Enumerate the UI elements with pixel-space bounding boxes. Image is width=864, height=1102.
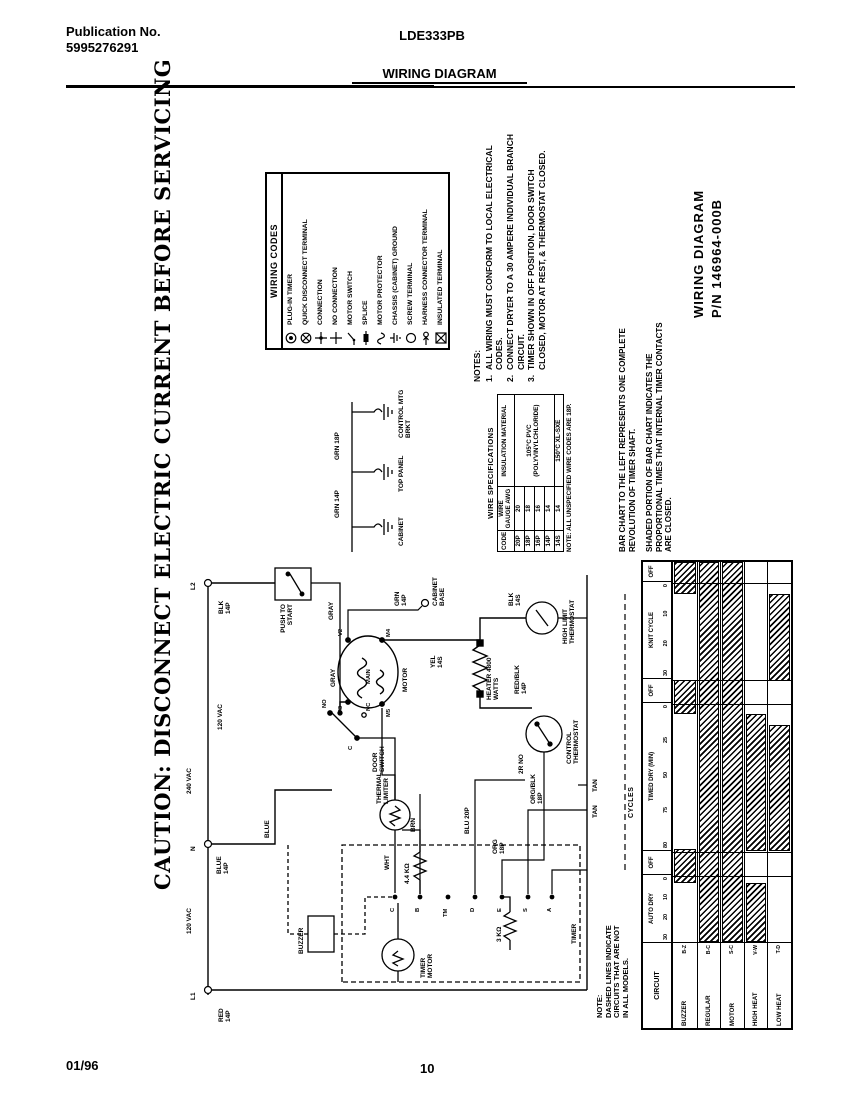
note-item: 2. CONNECT DRYER TO A 30 AMPERE INDIVIDU… xyxy=(505,132,526,382)
timer-terminal-b: B xyxy=(415,908,421,912)
part-number-value: P/N 146964-000B xyxy=(708,128,726,318)
label-timer-motor: TIMER MOTOR xyxy=(420,944,434,978)
table-row: 14S 14 150°C XL-SXE xyxy=(554,395,564,552)
label-ground-cabinet: CABINET xyxy=(398,506,405,546)
bar-chart-captions: BAR CHART TO THE LEFT REPRESENTS ONE COM… xyxy=(618,320,682,552)
legend-item: MOTOR PROTECTOR xyxy=(373,174,388,348)
label-high-limit-thermostat: HIGH LIMIT THERMOSTAT xyxy=(562,592,576,644)
timer-terminal-d: D xyxy=(470,908,476,912)
label-l1: L1 xyxy=(190,992,197,1000)
label-org-18p: ORG 18P xyxy=(492,826,506,854)
section-auto-dry: AUTO DRY 30 20 10 0 xyxy=(643,875,671,943)
section-divider xyxy=(671,680,791,681)
part-number-block: WIRING DIAGRAM P/N 146964-000B xyxy=(690,128,725,318)
knit-cycle-ticks: 30 20 10 0 xyxy=(661,582,671,678)
terminal-n xyxy=(205,841,212,848)
plug-in-timer-icon xyxy=(285,325,297,345)
label-2r-no: 2R NO xyxy=(518,754,525,774)
label-120vac-right: 120 VAC xyxy=(217,704,224,730)
label-main-winding: MAIN xyxy=(366,669,372,684)
terminal-l1 xyxy=(205,987,212,994)
legend-item: SCREW TERMINAL xyxy=(403,174,418,348)
harness-connector-terminal-icon xyxy=(420,325,432,345)
cycles-title: CYCLES xyxy=(628,787,635,818)
timer-terminal-a: A xyxy=(547,908,553,912)
legend-item: CHASSIS (CABINET) GROUND xyxy=(388,174,403,348)
wire-specs-table: CODE WIRE GAUGE AWG INSULATION MATERIAL … xyxy=(497,394,564,552)
circuit-schematic: L1 RED 14P N BLUE 14P L2 BLK 14P 120 VAC… xyxy=(180,560,630,1030)
section-divider xyxy=(671,852,791,853)
screw-terminal-icon xyxy=(405,325,417,345)
label-nc: NC xyxy=(366,703,372,711)
label-gray-1: GRAY xyxy=(328,602,335,620)
label-no: NO xyxy=(322,699,328,708)
label-tan-1: TAN xyxy=(592,805,599,818)
timer-terminals xyxy=(393,895,555,900)
table-row: 20P 20 105°C PVC (POLYVINYLCHLORIDE) xyxy=(514,395,524,552)
chart-track xyxy=(698,562,721,943)
chassis-ground-icon xyxy=(384,404,392,535)
caution-banner: CAUTION: DISCONNECT ELECTRIC CURRENT BEF… xyxy=(150,265,175,890)
note-item: 3. TIMER SHOWN IN OFF POSITION, DOOR SWI… xyxy=(526,132,547,382)
timer-chart-shaded-segment xyxy=(746,714,767,851)
wire-specs-title: WIRE SPECIFICATIONS xyxy=(486,394,495,552)
timer-chart-shaded-segment xyxy=(769,594,790,681)
label-timer: TIMER xyxy=(571,924,578,944)
label-120vac-left: 120 VAC xyxy=(186,908,193,934)
heater-element xyxy=(382,618,532,708)
timer-chart-shaded-segment xyxy=(674,562,696,594)
label-m5: M5 xyxy=(386,709,392,717)
insulation-pvc-cell: 105°C PVC (POLYVINYLCHLORIDE) xyxy=(514,395,554,487)
wire-specifications: WIRE SPECIFICATIONS CODE WIRE GAUGE AWG … xyxy=(486,394,574,552)
header-rule-thick xyxy=(66,85,434,88)
timer-terminal-s: S xyxy=(523,908,529,912)
label-wht: WHT xyxy=(384,855,391,870)
label-n: N xyxy=(190,846,197,851)
section-divider xyxy=(671,704,791,705)
label-l2: L2 xyxy=(190,582,197,590)
label-blu-20p: BLU 20P xyxy=(464,806,471,834)
motor-switch-icon xyxy=(345,325,357,345)
timer-chart-shaded-segment xyxy=(769,725,790,851)
label-c: C xyxy=(348,746,354,750)
section-divider xyxy=(671,876,791,877)
label-blk-14s: BLK 14S xyxy=(508,582,522,606)
chart-track xyxy=(673,562,697,943)
label-3k: 3 KΩ xyxy=(496,927,503,942)
label-n-wire: BLUE 14P xyxy=(216,846,230,874)
notes-block: NOTES: 1. ALL WIRING MUST CONFORM TO LOC… xyxy=(472,132,547,382)
chart-track xyxy=(745,562,768,943)
section-off-3: OFF xyxy=(643,562,671,582)
part-number-title: WIRING DIAGRAM xyxy=(690,128,708,318)
timer-terminal-c: C xyxy=(390,908,396,912)
table-header-row: CODE WIRE GAUGE AWG INSULATION MATERIAL xyxy=(498,395,515,552)
label-240vac: 240 VAC xyxy=(186,768,193,794)
model-number: LDE333PB xyxy=(0,28,864,43)
no-connection-icon xyxy=(330,325,342,345)
label-gray-2: GRAY xyxy=(330,669,337,687)
label-org-blk-18p: ORG/BLK 18P xyxy=(530,772,544,804)
label-red-blk-14p: RED/BLK 14P xyxy=(514,662,528,694)
insulated-terminal-icon xyxy=(435,325,447,345)
auto-dry-ticks: 30 20 10 0 xyxy=(661,875,671,942)
legend-item: SPLICE xyxy=(358,174,373,348)
chart-row-low-heat: LOW HEAT T-D xyxy=(767,562,791,1028)
label-grn-14p-ground: GRN 14P xyxy=(334,490,341,518)
label-l1-wire: RED 14P xyxy=(218,998,232,1022)
timer-terminal-tm: TM xyxy=(443,909,449,917)
legend-item: PLUG-IN TIMER xyxy=(283,174,298,348)
bar-chart-caption-1: BAR CHART TO THE LEFT REPRESENTS ONE COM… xyxy=(618,320,637,552)
footer-page-number: 10 xyxy=(420,1061,434,1076)
wiring-codes-title: WIRING CODES xyxy=(267,174,283,348)
chart-row-motor: MOTOR S-C xyxy=(720,562,744,1028)
chart-header: CIRCUIT AUTO DRY 30 20 10 0 OFF xyxy=(643,562,673,1028)
label-heater: HEATER 4800 WATTS xyxy=(486,648,500,700)
label-m3: M3 xyxy=(338,706,344,714)
chassis-ground-icon xyxy=(390,325,402,345)
footer-date: 01/96 xyxy=(66,1058,99,1073)
timer-motor-symbol xyxy=(382,939,414,971)
bar-chart-caption-2: SHADED PORTION OF BAR CHART INDICATES TH… xyxy=(645,320,674,552)
document-title: WIRING DIAGRAM xyxy=(352,66,527,84)
legend-item: NO CONNECTION xyxy=(328,174,343,348)
section-divider xyxy=(671,583,791,584)
timer-chart-shaded-segment xyxy=(699,562,720,942)
section-timed-dry: TIMED DRY (MIN) 80 75 50 25 0 xyxy=(643,703,671,851)
label-tan-2: TAN xyxy=(592,779,599,792)
timer-wires xyxy=(420,752,587,894)
timer-terminal-e: E xyxy=(497,908,503,912)
wire-specs-note: NOTE: ALL UNSPECIFIED WIRE CODES ARE 18P… xyxy=(566,394,573,552)
legend-item: QUICK DISCONNECT TERMINAL xyxy=(298,174,313,348)
control-thermostat-symbol xyxy=(526,716,562,752)
legend-item: INSULATED TERMINAL xyxy=(433,174,448,348)
wiring-codes-legend: WIRING CODES PLUG-IN TIMER QUICK DISCONN… xyxy=(265,172,450,350)
note-item: 1. ALL WIRING MUST CONFORM TO LOCAL ELEC… xyxy=(484,132,505,382)
insulation-xl-cell: 150°C XL-SXE xyxy=(554,395,564,487)
label-buzzer: BUZZER xyxy=(298,928,305,954)
terminal-l2 xyxy=(205,580,212,587)
label-4-4k: 4.4 KΩ xyxy=(404,863,411,884)
label-push-to-start: PUSH TO START xyxy=(280,604,294,642)
label-grn-18p-ground: GRN 18P xyxy=(334,432,341,460)
timed-dry-ticks: 80 75 50 25 0 xyxy=(661,703,671,850)
resistor-3k xyxy=(504,912,516,940)
label-thermal-limiter: THERMAL LIMITER xyxy=(376,764,390,804)
timer-chart-shaded-segment xyxy=(674,680,696,714)
label-cabinet-base: CABINET BASE xyxy=(432,568,446,606)
section-knit-cycle: KNIT CYCLE 30 20 10 0 xyxy=(643,582,671,679)
quick-disconnect-terminal-icon xyxy=(300,325,312,345)
label-ground-top-panel: TOP PANEL xyxy=(398,452,405,492)
legend-item: HARNESS CONNECTOR TERMINAL xyxy=(418,174,433,348)
chart-row-high-heat: HIGH HEAT V-W xyxy=(744,562,768,1028)
legend-item: CONNECTION xyxy=(313,174,328,348)
chart-track xyxy=(768,562,791,943)
label-brn: BRN xyxy=(410,818,417,832)
circuit-column-header: CIRCUIT xyxy=(643,943,671,1028)
wiring-diagram-landscape: CAUTION: DISCONNECT ELECTRIC CURRENT BEF… xyxy=(150,130,800,1030)
timer-cycle-chart: CIRCUIT AUTO DRY 30 20 10 0 OFF xyxy=(641,560,793,1030)
section-off-2: OFF xyxy=(643,679,671,703)
chart-body: BUZZER B-Z REGULAR B-C MOTOR S-C xyxy=(673,562,791,1028)
label-grn-14p: GRN 14P xyxy=(394,582,408,606)
timer-chart-shaded-segment xyxy=(746,883,767,942)
rotated-diagram-area: CAUTION: DISCONNECT ELECTRIC CURRENT BEF… xyxy=(150,130,800,1030)
splice-icon xyxy=(360,325,372,345)
label-yel-14s: YEL 14S xyxy=(430,644,444,668)
manual-page: Publication No. 5995276291 LDE333PB WIRI… xyxy=(0,0,864,1102)
timer-chart-shaded-segment xyxy=(674,849,696,883)
label-v2: V2 xyxy=(338,629,344,636)
timer-chart-shaded-segment xyxy=(722,562,743,942)
high-limit-thermostat-symbol xyxy=(526,602,587,634)
label-l2-wire: BLK 14P xyxy=(218,588,232,614)
motor-protector-icon xyxy=(375,325,387,345)
label-blue-wire: BLUE xyxy=(264,820,271,838)
section-off-1: OFF xyxy=(643,851,671,875)
chart-track xyxy=(721,562,744,943)
label-control-thermostat: CONTROL THERMOSTAT xyxy=(566,716,580,764)
ground-connections: GRN 14P GRN 18P CABINET TOP PANEL CONTRO… xyxy=(322,376,482,552)
label-ground-control-mtg-brkt: CONTROL MTG BRKT xyxy=(398,386,412,438)
dashed-lines-note: NOTE: DASHED LINES INDICATE CIRCUITS THA… xyxy=(596,898,631,1018)
label-m4: M4 xyxy=(386,629,392,637)
chart-row-buzzer: BUZZER B-Z xyxy=(673,562,697,1028)
connection-icon xyxy=(315,325,327,345)
notes-title: NOTES: xyxy=(472,132,483,382)
chart-row-regular: REGULAR B-C xyxy=(697,562,721,1028)
legend-item: MOTOR SWITCH xyxy=(343,174,358,348)
label-motor: MOTOR xyxy=(402,668,409,692)
